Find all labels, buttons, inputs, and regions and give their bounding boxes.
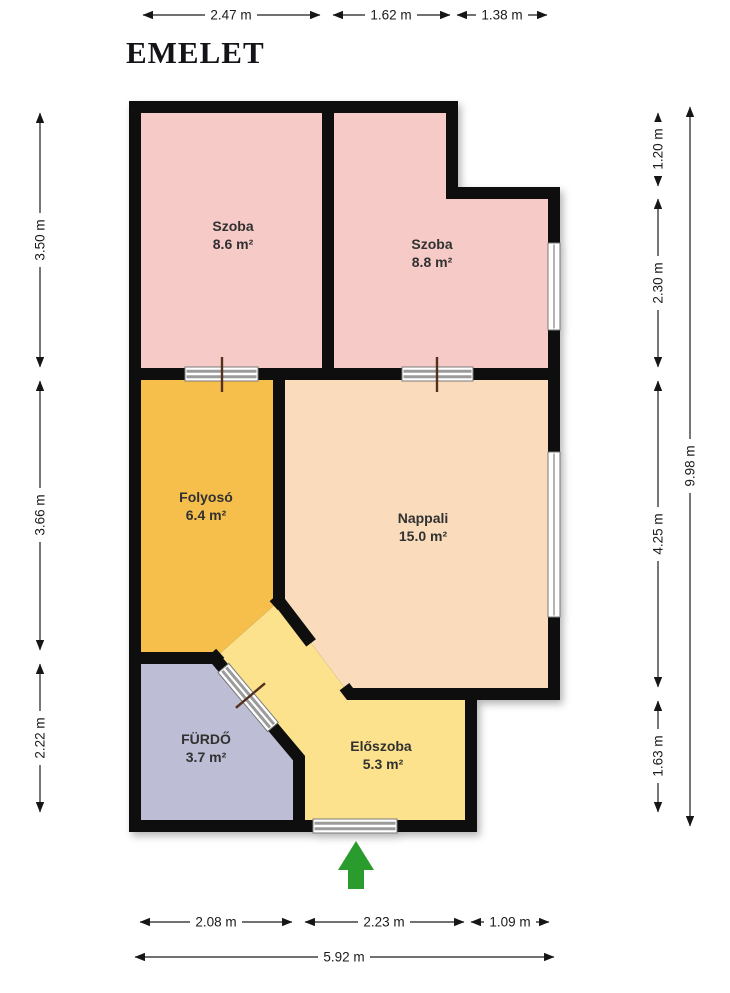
dim-left-2: 3.66 m (33, 494, 48, 535)
building (135, 107, 560, 833)
label-furdo-name: FÜRDŐ (181, 730, 231, 747)
dim-right-2: 2.30 m (651, 262, 666, 303)
entrance-arrow-icon (338, 841, 374, 889)
dim-bottom-total: 5.92 m (323, 950, 364, 965)
label-folyoso-area: 6.4 m² (186, 507, 227, 523)
dim-top-2: 1.62 m (370, 8, 411, 23)
dim-top-1: 2.47 m (210, 8, 251, 23)
floor-plan-svg: EMELET Szoba 8.6 m² Szoba 8.8 m² Folyosó… (0, 0, 730, 993)
dim-left-3: 2.22 m (33, 717, 48, 758)
dim-right-4: 1.63 m (651, 735, 666, 776)
label-szoba1-name: Szoba (212, 218, 253, 234)
dim-right-3: 4.25 m (651, 513, 666, 554)
door-entrance (313, 819, 397, 833)
label-nappali-area: 15.0 m² (399, 528, 448, 544)
window-szoba2 (548, 243, 560, 330)
label-furdo-area: 3.7 m² (186, 749, 227, 765)
dim-left-1: 3.50 m (33, 219, 48, 260)
label-nappali-name: Nappali (398, 510, 449, 526)
dim-bottom-3: 1.09 m (489, 915, 530, 930)
dim-bottom-2: 2.23 m (363, 915, 404, 930)
dim-top-3: 1.38 m (481, 8, 522, 23)
label-eloszoba-area: 5.3 m² (363, 756, 404, 772)
label-eloszoba-name: Előszoba (350, 738, 412, 754)
floorplan-page: EMELET Szoba 8.6 m² Szoba 8.8 m² Folyosó… (0, 0, 730, 993)
page-title: EMELET (126, 35, 265, 70)
rooms-group (135, 107, 554, 826)
label-folyoso-name: Folyosó (179, 489, 233, 505)
dim-bottom-1: 2.08 m (195, 915, 236, 930)
label-szoba2-area: 8.8 m² (412, 254, 453, 270)
dim-right-total: 9.98 m (683, 445, 698, 486)
window-nappali (548, 452, 560, 617)
dim-right-1: 1.20 m (651, 128, 666, 169)
label-szoba1-area: 8.6 m² (213, 236, 254, 252)
label-szoba2-name: Szoba (411, 236, 452, 252)
